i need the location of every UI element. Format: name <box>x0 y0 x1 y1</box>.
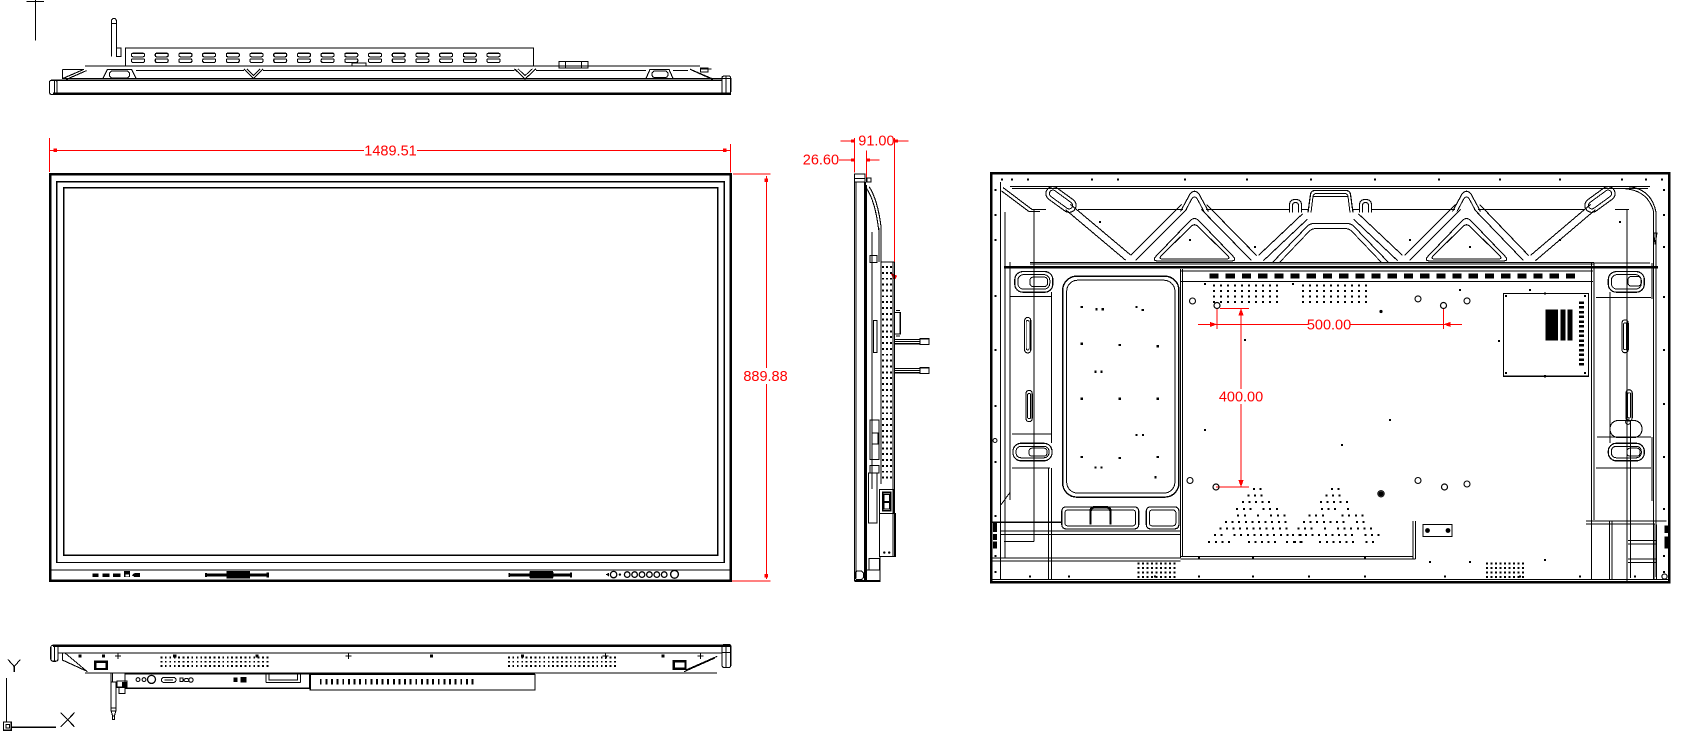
svg-text:500.00: 500.00 <box>1307 317 1351 333</box>
svg-text:400.00: 400.00 <box>1219 390 1263 406</box>
svg-text:889.88: 889.88 <box>743 369 787 385</box>
svg-text:1489.51: 1489.51 <box>364 143 416 159</box>
svg-text:26.60: 26.60 <box>803 153 839 169</box>
svg-text:91.00: 91.00 <box>858 134 894 150</box>
